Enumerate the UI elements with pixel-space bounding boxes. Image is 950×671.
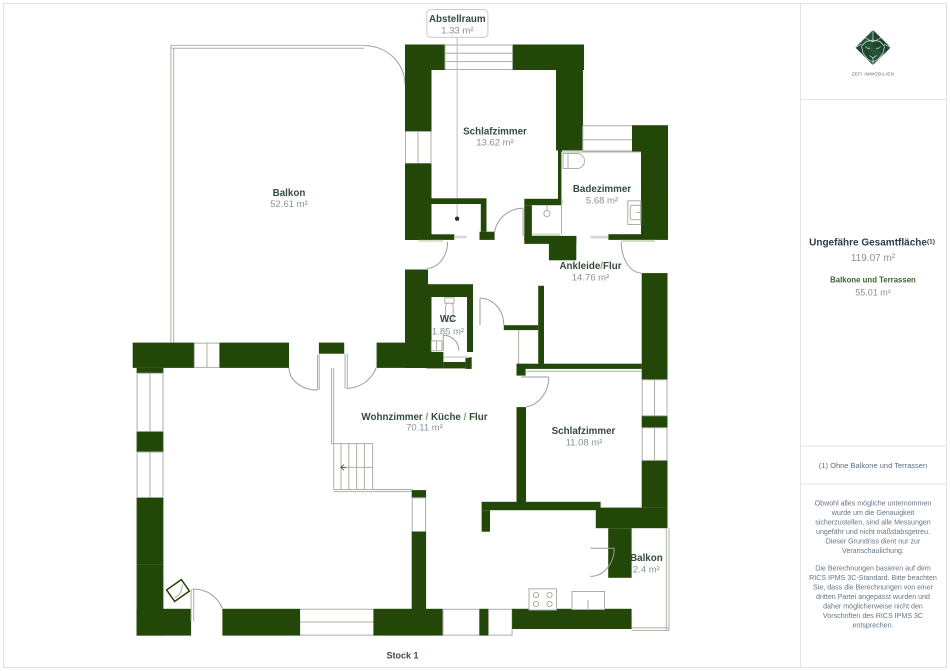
svg-text:70.11 m²: 70.11 m²: [406, 422, 443, 433]
svg-text:Balkon: Balkon: [630, 553, 663, 564]
svg-text:Schlafzimmer: Schlafzimmer: [552, 426, 616, 437]
svg-text:55.01 m²: 55.01 m²: [855, 288, 891, 298]
svg-text:Schlafzimmer: Schlafzimmer: [463, 126, 527, 137]
svg-text:119.07 m²: 119.07 m²: [851, 253, 896, 264]
svg-text:wurde um die Genauigkeit: wurde um die Genauigkeit: [831, 509, 914, 517]
svg-text:11.08 m²: 11.08 m²: [566, 438, 603, 449]
svg-text:RICS IPMS 3C-Standard. Bitte b: RICS IPMS 3C-Standard. Bitte beachten: [809, 574, 937, 582]
svg-text:WC: WC: [440, 314, 456, 325]
svg-text:52.61 m²: 52.61 m²: [270, 199, 308, 210]
svg-text:Abstellraum: Abstellraum: [429, 14, 486, 25]
svg-text:Wohnzimmer / Küche / Flur: Wohnzimmer / Küche / Flur: [361, 412, 487, 423]
svg-text:sicherzustellen, sind alle Mes: sicherzustellen, sind alle Messungen: [815, 519, 931, 527]
svg-text:5.68 m²: 5.68 m²: [586, 196, 618, 207]
svg-text:dritten Partei angepasst wurde: dritten Partei angepasst wurden und: [816, 593, 930, 601]
svg-text:Vorschriften des RICS IPMS 3C: Vorschriften des RICS IPMS 3C: [823, 612, 923, 620]
svg-text:1.85 m²: 1.85 m²: [432, 327, 464, 338]
svg-text:Balkon: Balkon: [273, 188, 306, 199]
svg-text:ungefähr und nicht maßstabsget: ungefähr und nicht maßstabsgetreu.: [816, 528, 930, 536]
svg-text:Balkone und Terrassen: Balkone und Terrassen: [830, 276, 916, 285]
svg-text:Obwohl alles mögliche unternom: Obwohl alles mögliche unternommen: [815, 500, 932, 508]
svg-text:Ankleide/Flur: Ankleide/Flur: [559, 261, 621, 272]
svg-text:2.4 m²: 2.4 m²: [633, 564, 660, 575]
svg-text:entsprechen.: entsprechen.: [852, 622, 893, 630]
svg-text:1.33 m²: 1.33 m²: [441, 26, 473, 37]
svg-text:(1) Ohne Balkone und Terrassen: (1) Ohne Balkone und Terrassen: [819, 461, 927, 470]
svg-text:Veranschaulichung.: Veranschaulichung.: [842, 547, 904, 555]
svg-text:Dieser Grundriss dient nur zur: Dieser Grundriss dient nur zur: [826, 538, 921, 546]
svg-text:ZEFI IMMOBILIEN: ZEFI IMMOBILIEN: [852, 72, 895, 77]
svg-text:Stock 1: Stock 1: [386, 650, 418, 660]
svg-text:daher möglicherweise nicht den: daher möglicherweise nicht den: [823, 603, 923, 611]
svg-text:Die Berechnungen basieren auf: Die Berechnungen basieren auf dem: [815, 565, 931, 573]
svg-text:Sie, dass die Berechnungen von: Sie, dass die Berechnungen von einer: [813, 584, 934, 592]
svg-text:13.62 m²: 13.62 m²: [476, 137, 514, 148]
svg-text:Ungefähre Gesamtfläche(1): Ungefähre Gesamtfläche(1): [809, 238, 935, 249]
svg-text:Badezimmer: Badezimmer: [573, 184, 631, 195]
svg-text:14.76 m²: 14.76 m²: [572, 273, 610, 284]
